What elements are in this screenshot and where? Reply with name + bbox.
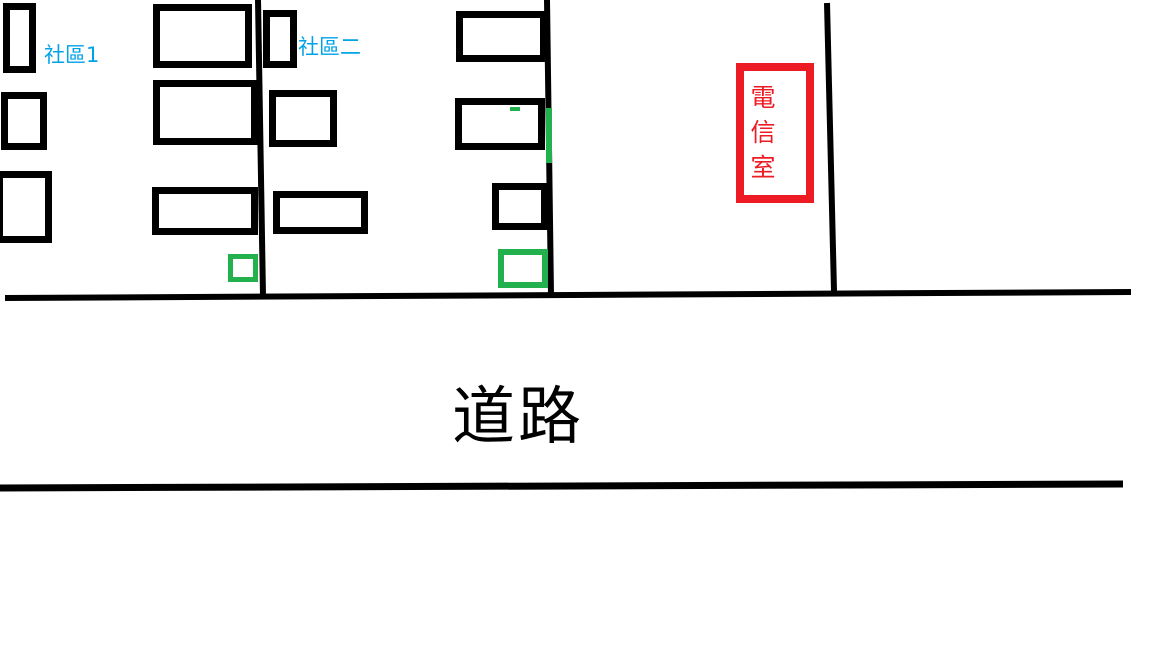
- road-edge-bottom: [0, 484, 1123, 488]
- building-right-2: [455, 98, 545, 150]
- green-line-vertical: [546, 108, 552, 163]
- boundary-line-right: [827, 3, 834, 291]
- green-box-center: [498, 249, 548, 288]
- paint-canvas[interactable]: 社區1 社區二 電 信 室 道路: [0, 0, 1152, 648]
- building-right-3: [492, 183, 548, 230]
- green-dash: [510, 107, 520, 111]
- telecom-char-3: 室: [737, 150, 789, 185]
- green-box-left: [228, 254, 258, 282]
- building-mid-5: [152, 187, 258, 235]
- building-mid-2: [263, 10, 297, 68]
- road-edge-top: [5, 292, 1131, 298]
- telecom-char-1: 電: [737, 80, 789, 115]
- building-right-1: [456, 11, 547, 62]
- telecom-room-label: 電 信 室: [737, 80, 789, 185]
- community2-label: 社區二: [298, 31, 361, 61]
- building-left-2: [1, 92, 47, 150]
- building-mid-6: [273, 191, 368, 234]
- building-left-3: [0, 171, 52, 243]
- building-mid-1: [153, 4, 252, 68]
- community1-label: 社區1: [44, 39, 99, 69]
- telecom-char-2: 信: [737, 115, 789, 150]
- building-mid-3: [153, 80, 258, 145]
- road-label: 道路: [452, 366, 584, 457]
- building-mid-4: [269, 90, 337, 147]
- building-left-1: [3, 3, 36, 73]
